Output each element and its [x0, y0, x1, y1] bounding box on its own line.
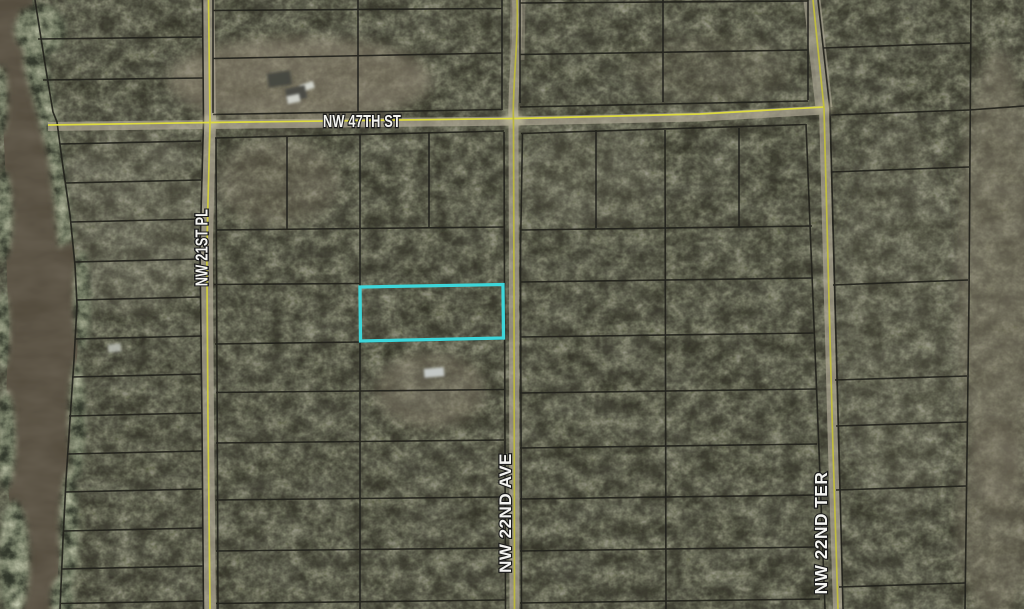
svg-text:NW 47TH ST: NW 47TH ST: [323, 112, 401, 131]
svg-text:NW 21ST PL: NW 21ST PL: [193, 209, 212, 286]
svg-text:NW 22ND AVE: NW 22ND AVE: [496, 453, 515, 573]
svg-text:NW 22ND TER: NW 22ND TER: [811, 472, 831, 595]
